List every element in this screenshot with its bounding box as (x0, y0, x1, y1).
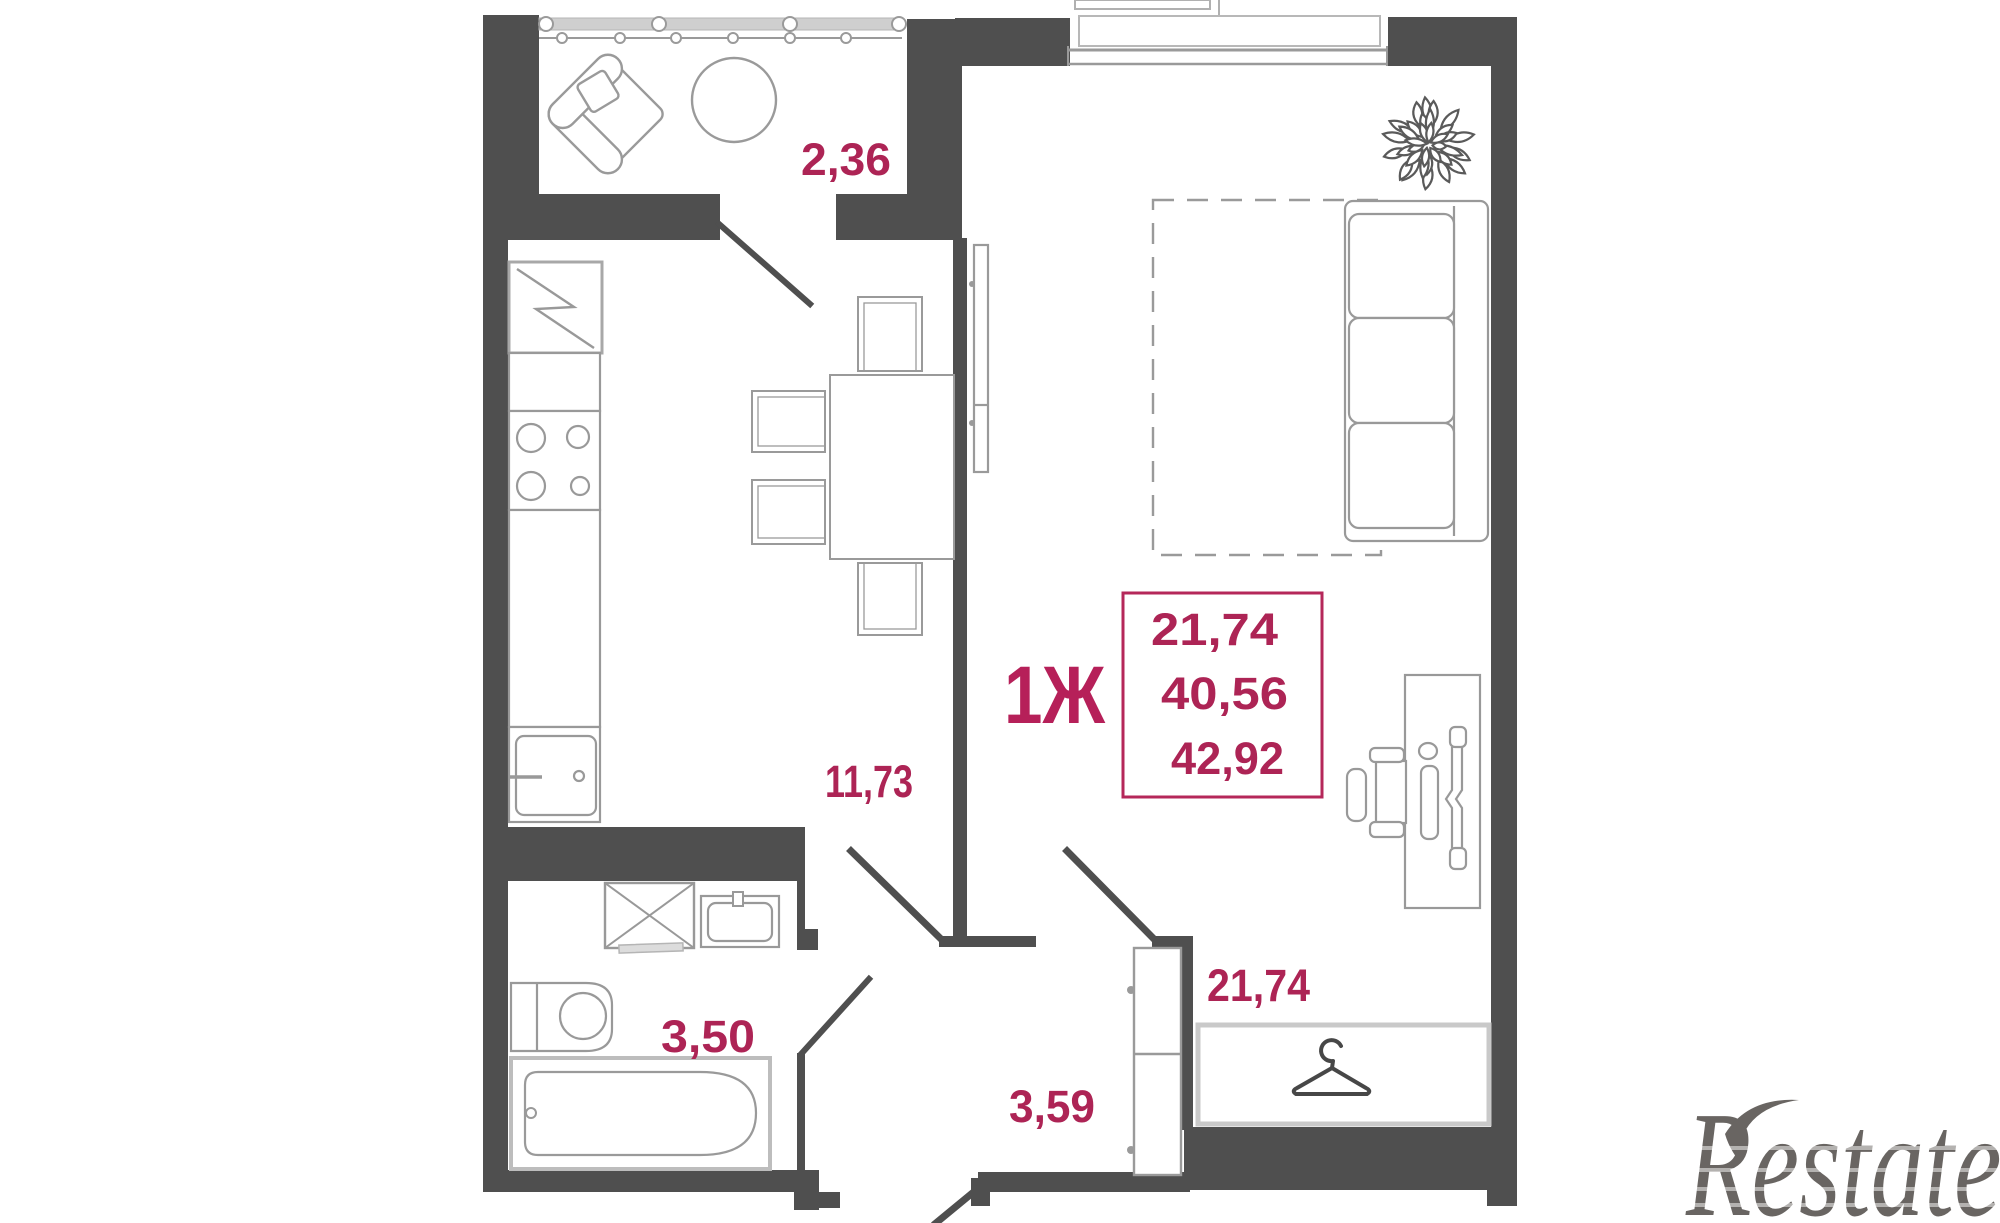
svg-text:21,74: 21,74 (1151, 604, 1278, 655)
svg-text:Restate: Restate (1685, 1081, 2000, 1223)
svg-text:21,74: 21,74 (1207, 960, 1311, 1011)
svg-text:40,56: 40,56 (1161, 668, 1288, 719)
svg-text:11,73: 11,73 (825, 756, 913, 807)
svg-text:2,36: 2,36 (801, 134, 891, 185)
svg-text:3,50: 3,50 (661, 1011, 755, 1062)
svg-text:3,59: 3,59 (1009, 1081, 1095, 1132)
svg-text:1Ж: 1Ж (1004, 650, 1106, 741)
svg-text:42,92: 42,92 (1171, 733, 1284, 784)
